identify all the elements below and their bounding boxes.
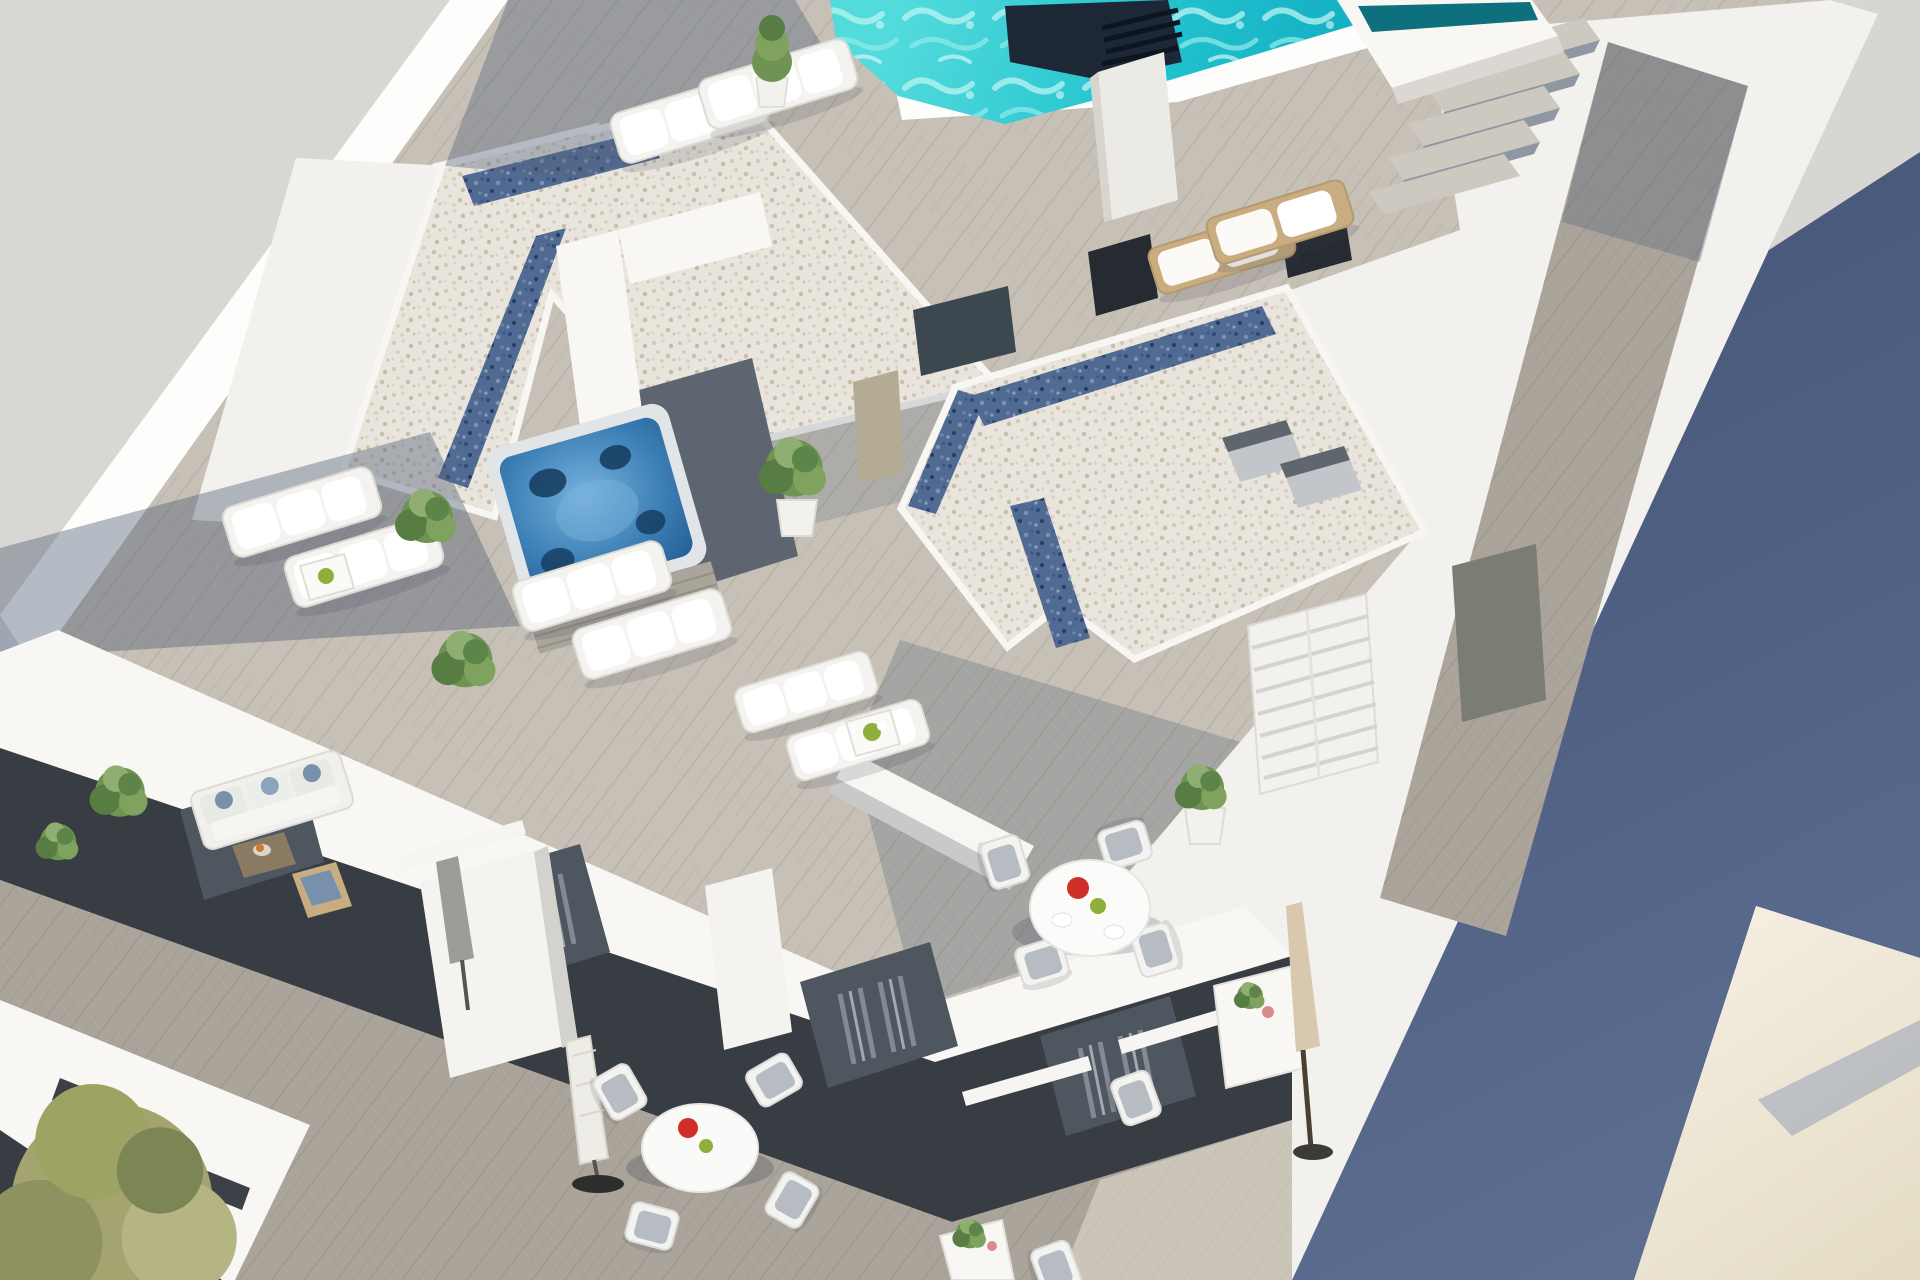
rendering-stage [0, 0, 1920, 1280]
green-bowl [1090, 898, 1106, 914]
bistro-table [1214, 966, 1304, 1088]
terrace-door [853, 370, 904, 484]
rooftop-render [0, 0, 1920, 1280]
roof-access-door [1452, 544, 1546, 722]
louvered-closet [1248, 594, 1378, 794]
round-table [1030, 860, 1150, 956]
red-plate [1067, 877, 1089, 899]
